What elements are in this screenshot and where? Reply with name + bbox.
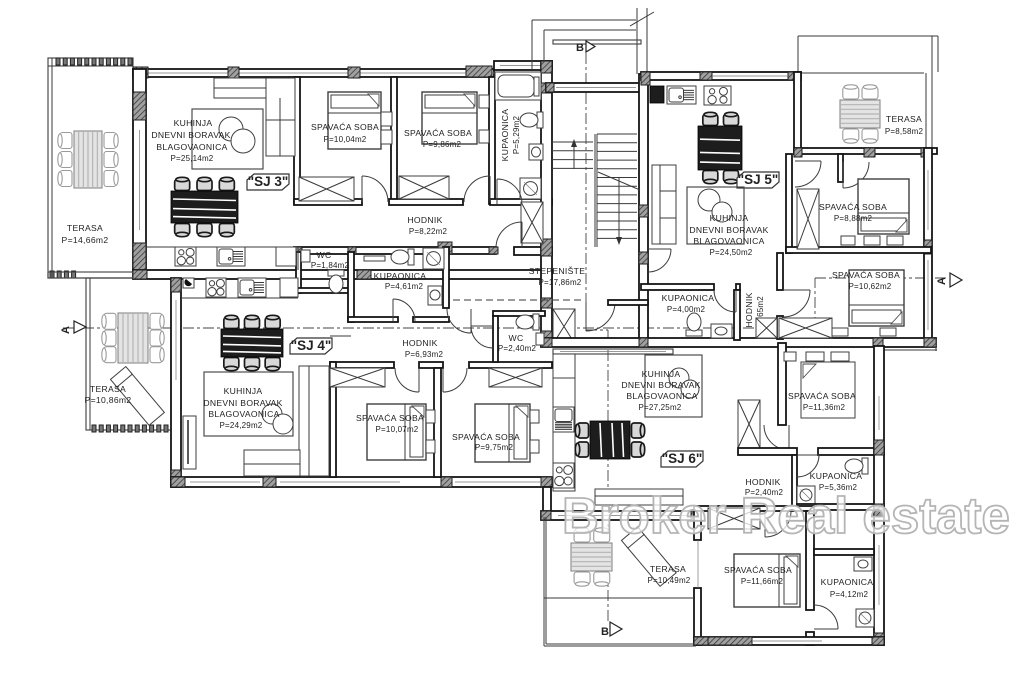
svg-text:P=4,61m2: P=4,61m2 bbox=[385, 282, 424, 291]
svg-text:SPAVAĆA SOBA: SPAVAĆA SOBA bbox=[819, 202, 887, 212]
svg-text:WC: WC bbox=[317, 250, 332, 260]
svg-text:KUHINJA: KUHINJA bbox=[174, 118, 213, 128]
svg-text:SPAVAĆA SOBA: SPAVAĆA SOBA bbox=[452, 432, 520, 442]
svg-text:HODNIK: HODNIK bbox=[407, 215, 442, 225]
svg-text:P=11,36m2: P=11,36m2 bbox=[803, 403, 846, 412]
svg-text:DNEVNI BORAVAK: DNEVNI BORAVAK bbox=[689, 225, 768, 235]
svg-text:P=10,04m2: P=10,04m2 bbox=[324, 135, 367, 144]
svg-text:P=8,88m2: P=8,88m2 bbox=[834, 214, 873, 223]
svg-text:P=6,93m2: P=6,93m2 bbox=[405, 350, 444, 359]
svg-text:SPAVAĆA SOBA: SPAVAĆA SOBA bbox=[356, 413, 424, 423]
svg-text:"SJ 5": "SJ 5" bbox=[738, 172, 779, 187]
svg-text:HODNIK: HODNIK bbox=[402, 338, 437, 348]
svg-text:P=11,66m2: P=11,66m2 bbox=[741, 577, 784, 586]
svg-text:BLAGOVAONICA: BLAGOVAONICA bbox=[208, 409, 279, 419]
svg-text:DNEVNI BORAVAK: DNEVNI BORAVAK bbox=[203, 398, 282, 408]
svg-text:TERASA: TERASA bbox=[886, 114, 922, 124]
svg-text:B: B bbox=[576, 42, 584, 54]
svg-text:BLAGOVAONICA: BLAGOVAONICA bbox=[693, 236, 764, 246]
svg-text:P=10,86m2: P=10,86m2 bbox=[85, 395, 132, 405]
svg-text:KUPAONICA: KUPAONICA bbox=[374, 271, 427, 281]
svg-text:SPAVAĆA SOBA: SPAVAĆA SOBA bbox=[788, 391, 856, 401]
svg-text:"SJ 6": "SJ 6" bbox=[662, 451, 703, 466]
svg-text:P=8,58m2: P=8,58m2 bbox=[885, 127, 924, 136]
svg-text:WC: WC bbox=[509, 333, 524, 343]
svg-text:P=4,12m2: P=4,12m2 bbox=[830, 590, 869, 599]
svg-text:"SJ 3": "SJ 3" bbox=[248, 174, 289, 189]
svg-text:A: A bbox=[60, 326, 72, 334]
svg-text:DNEVNI BORAVAK: DNEVNI BORAVAK bbox=[151, 130, 230, 140]
svg-text:KUPAONICA: KUPAONICA bbox=[662, 293, 715, 303]
svg-text:P=24,50m2: P=24,50m2 bbox=[710, 248, 753, 257]
svg-text:TERASA: TERASA bbox=[90, 384, 126, 394]
svg-text:KUPAONICA: KUPAONICA bbox=[500, 109, 510, 162]
svg-text:"SJ 4": "SJ 4" bbox=[291, 338, 332, 353]
svg-text:P=27,25m2: P=27,25m2 bbox=[639, 403, 682, 412]
svg-text:P=1,84m2: P=1,84m2 bbox=[311, 261, 350, 270]
svg-text:STEPENIŠTE: STEPENIŠTE bbox=[529, 266, 585, 276]
svg-text:P=2,40m2: P=2,40m2 bbox=[498, 344, 537, 353]
svg-text:P=14,66m2: P=14,66m2 bbox=[62, 235, 109, 245]
svg-text:BLAGOVAONICA: BLAGOVAONICA bbox=[156, 142, 227, 152]
svg-text:SPAVAĆA SOBA: SPAVAĆA SOBA bbox=[832, 270, 900, 280]
svg-text:KUHINJA: KUHINJA bbox=[642, 369, 681, 379]
svg-text:P=24,29m2: P=24,29m2 bbox=[220, 421, 263, 430]
svg-text:P=25,14m2: P=25,14m2 bbox=[171, 154, 214, 163]
svg-text:P=17,86m2: P=17,86m2 bbox=[539, 278, 582, 287]
svg-text:B: B bbox=[601, 626, 609, 638]
svg-text:TERASA: TERASA bbox=[650, 564, 686, 574]
svg-text:P=10,62m2: P=10,62m2 bbox=[849, 282, 892, 291]
svg-text:HODNIK: HODNIK bbox=[744, 292, 754, 327]
svg-text:P=8,22m2: P=8,22m2 bbox=[409, 227, 448, 236]
svg-text:Broker Real estate: Broker Real estate bbox=[562, 487, 1010, 544]
svg-text:KUPAONICA: KUPAONICA bbox=[821, 577, 874, 587]
svg-text:SPAVAĆA SOBA: SPAVAĆA SOBA bbox=[724, 565, 792, 575]
svg-text:P=9,86m2: P=9,86m2 bbox=[423, 140, 462, 149]
svg-text:P=9,75m2: P=9,75m2 bbox=[475, 443, 514, 452]
svg-text:HODNIK: HODNIK bbox=[745, 477, 780, 487]
svg-text:TERASA: TERASA bbox=[67, 223, 103, 233]
svg-text:SPAVAĆA SOBA: SPAVAĆA SOBA bbox=[311, 122, 379, 132]
svg-text:BLAGOVAONICA: BLAGOVAONICA bbox=[626, 391, 697, 401]
svg-text:KUHINJA: KUHINJA bbox=[224, 386, 263, 396]
svg-text:SPAVAĆA SOBA: SPAVAĆA SOBA bbox=[404, 128, 472, 138]
svg-text:A: A bbox=[936, 277, 948, 285]
svg-text:P=10,07m2: P=10,07m2 bbox=[376, 425, 419, 434]
svg-text:P=10,49m2: P=10,49m2 bbox=[648, 576, 691, 585]
svg-text:DNEVNI BORAVAK: DNEVNI BORAVAK bbox=[621, 380, 700, 390]
svg-text:P=4,00m2: P=4,00m2 bbox=[667, 305, 706, 314]
svg-text:KUHINJA: KUHINJA bbox=[710, 213, 749, 223]
